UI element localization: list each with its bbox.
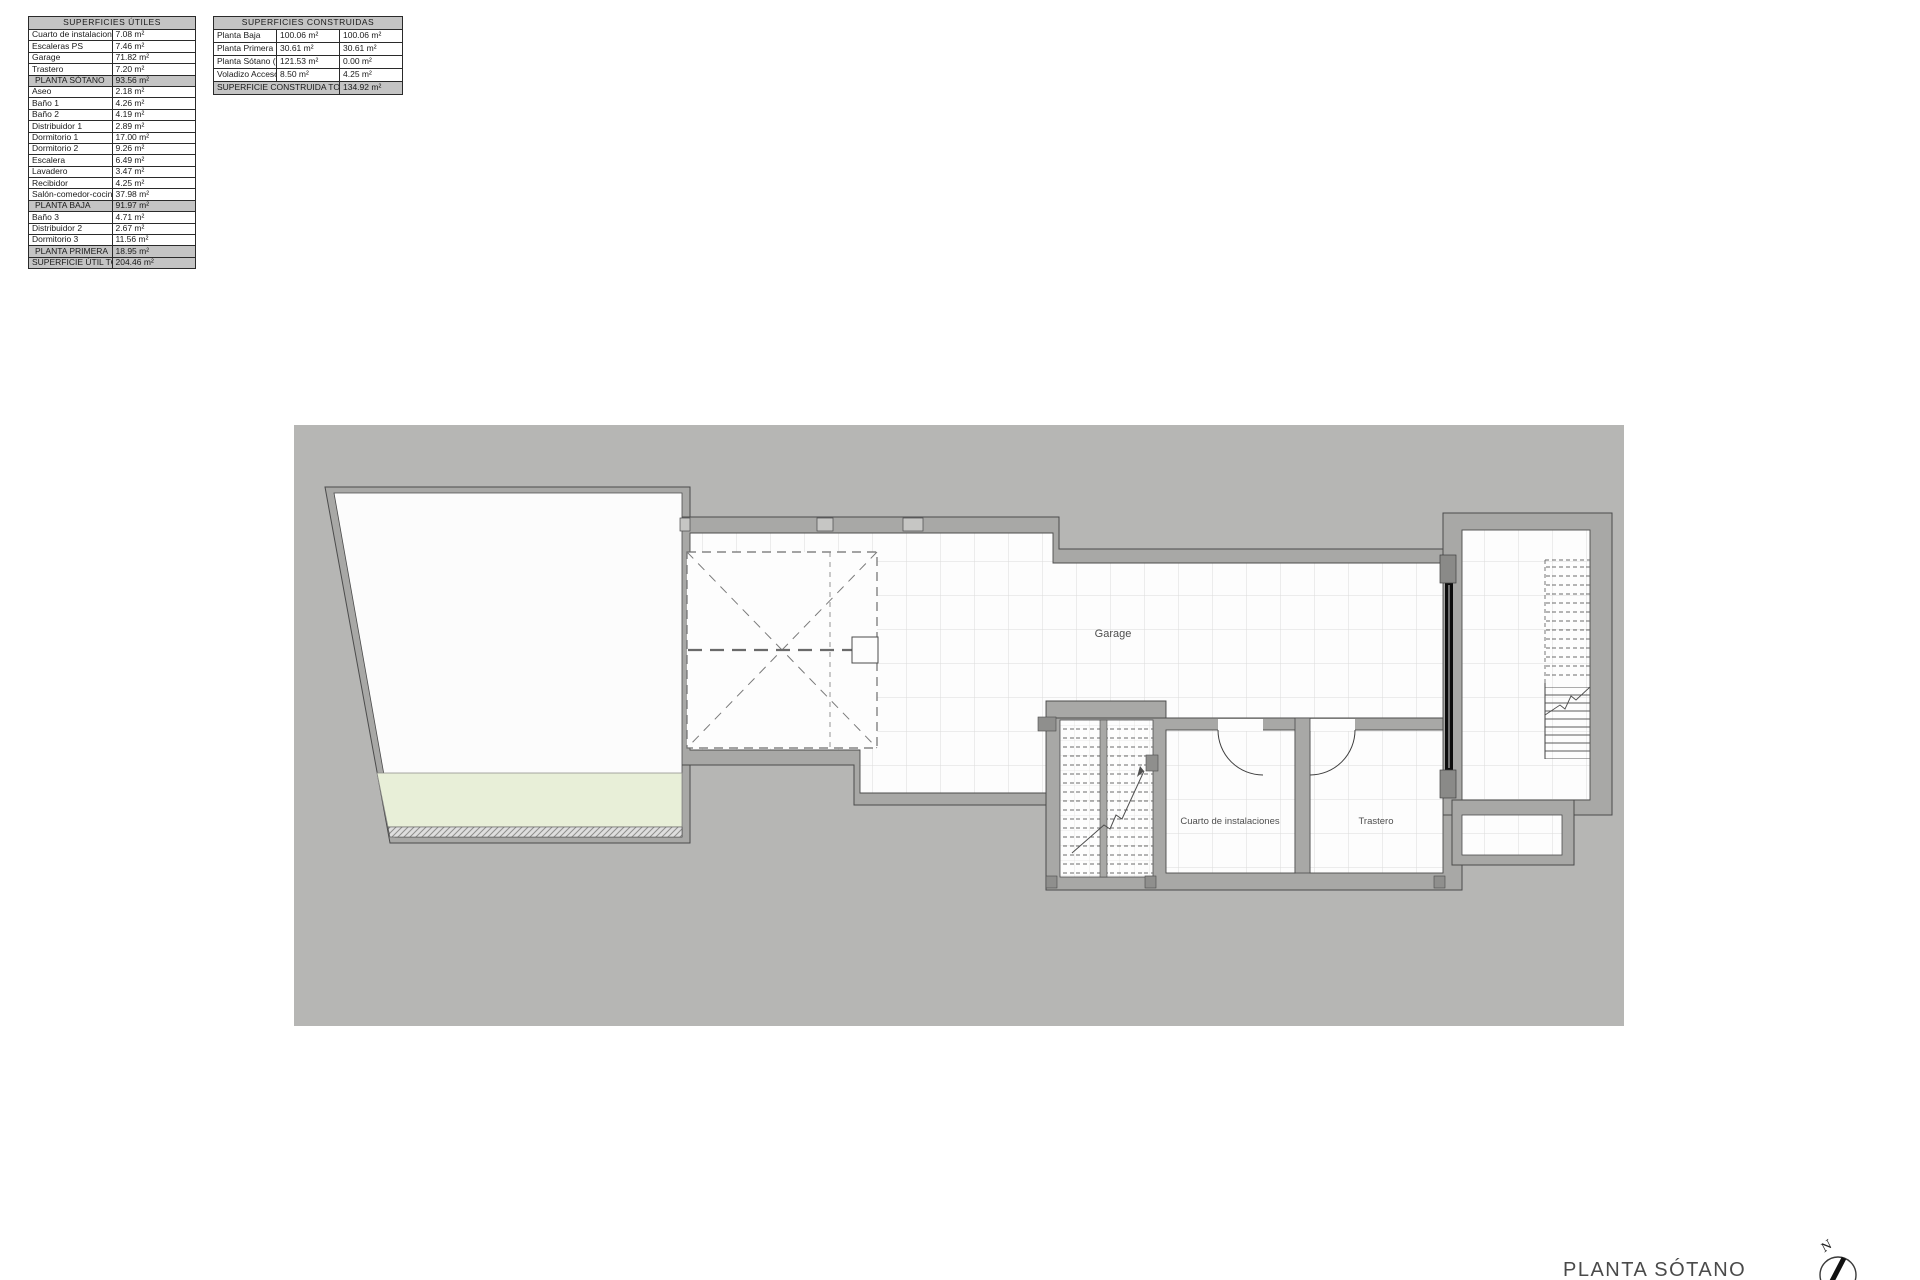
table-superficies-construidas: SUPERFICIES CONSTRUIDAS Planta Baja100.0… bbox=[213, 16, 403, 95]
floor-plan: Garage Cuarto de instalaciones Trastero bbox=[294, 425, 1624, 1026]
row-label: Dormitorio 3 bbox=[29, 235, 113, 246]
row-value: 4.25 m² bbox=[340, 69, 403, 82]
row-label: PLANTA BAJA bbox=[29, 200, 113, 211]
row-label: Escaleras PS bbox=[29, 41, 113, 52]
row-label: Distribuidor 1 bbox=[29, 121, 113, 132]
row-value: 17.00 m² bbox=[112, 132, 196, 143]
row-value: 121.53 m² bbox=[277, 56, 340, 69]
row-label: Baño 2 bbox=[29, 109, 113, 120]
row-value: 2.89 m² bbox=[112, 121, 196, 132]
row-value: 37.98 m² bbox=[112, 189, 196, 200]
table-header-row: SUPERFICIES CONSTRUIDAS bbox=[214, 17, 403, 30]
north-arrow-icon: N bbox=[1800, 1238, 1880, 1280]
car-lift-void bbox=[687, 552, 878, 748]
right-stairs bbox=[1545, 560, 1590, 759]
cuarto-label: Cuarto de instalaciones bbox=[1180, 816, 1280, 827]
row-value: 0.00 m² bbox=[340, 56, 403, 69]
row-label: Planta Sótano (0%) bbox=[214, 56, 277, 69]
table-title: SUPERFICIES ÚTILES bbox=[29, 17, 196, 30]
landing-floor bbox=[1462, 815, 1562, 855]
trastero-floor bbox=[1310, 730, 1443, 873]
terrace-green-strip bbox=[377, 773, 682, 827]
row-label: Salón-comedor-cocina bbox=[29, 189, 113, 200]
row-value: 134.92 m² bbox=[340, 82, 403, 95]
row-label: Garage bbox=[29, 52, 113, 63]
row-value: 7.20 m² bbox=[112, 64, 196, 75]
table-superficies-utiles: SUPERFICIES ÚTILES Cuarto de instalacion… bbox=[28, 16, 196, 269]
row-value: 30.61 m² bbox=[277, 43, 340, 56]
garage-label: Garage bbox=[1095, 628, 1132, 640]
row-label: Planta Primera bbox=[214, 43, 277, 56]
row-label: Baño 1 bbox=[29, 98, 113, 109]
row-label: Baño 3 bbox=[29, 212, 113, 223]
row-value: 30.61 m² bbox=[340, 43, 403, 56]
drawing-sheet: SUPERFICIES ÚTILES Cuarto de instalacion… bbox=[0, 0, 1920, 1280]
row-value: 100.06 m² bbox=[340, 30, 403, 43]
lift-platform-symbol bbox=[852, 637, 878, 663]
row-label: Planta Baja bbox=[214, 30, 277, 43]
row-value: 93.56 m² bbox=[112, 75, 196, 86]
row-value: 7.08 m² bbox=[112, 30, 196, 41]
table-row: Baño 34.71 m² bbox=[29, 212, 196, 223]
row-label: PLANTA PRIMERA bbox=[29, 246, 113, 257]
row-label: Trastero bbox=[29, 64, 113, 75]
table-row: SUPERFICIE CONSTRUIDA TOTAL134.92 m² bbox=[214, 82, 403, 95]
row-value: 8.50 m² bbox=[277, 69, 340, 82]
row-value: 4.71 m² bbox=[112, 212, 196, 223]
room-divider-wall bbox=[1295, 718, 1310, 873]
row-label: Dormitorio 2 bbox=[29, 143, 113, 154]
row-value: 4.25 m² bbox=[112, 178, 196, 189]
table-row: Lavadero3.47 m² bbox=[29, 166, 196, 177]
table-header-row: SUPERFICIES ÚTILES bbox=[29, 17, 196, 30]
row-label: Cuarto de instalaciones bbox=[29, 30, 113, 41]
table-row: PLANTA BAJA91.97 m² bbox=[29, 200, 196, 211]
table-row: PLANTA SÓTANO93.56 m² bbox=[29, 75, 196, 86]
table-row: PLANTA PRIMERA18.95 m² bbox=[29, 246, 196, 257]
table-title: SUPERFICIES CONSTRUIDAS bbox=[214, 17, 403, 30]
row-label: Lavadero bbox=[29, 166, 113, 177]
table-row: Voladizo Acceso(50%)8.50 m²4.25 m² bbox=[214, 69, 403, 82]
north-letter: N bbox=[1817, 1238, 1835, 1255]
row-value: 18.95 m² bbox=[112, 246, 196, 257]
table-row: Dormitorio 117.00 m² bbox=[29, 132, 196, 143]
row-value: 2.18 m² bbox=[112, 86, 196, 97]
row-value: 204.46 m² bbox=[112, 257, 196, 268]
row-value: 91.97 m² bbox=[112, 200, 196, 211]
row-value: 11.56 m² bbox=[112, 235, 196, 246]
row-label: PLANTA SÓTANO bbox=[29, 75, 113, 86]
table-row: Escaleras PS7.46 m² bbox=[29, 41, 196, 52]
row-label: SUPERFICIE ÚTIL TOTAL bbox=[29, 257, 113, 268]
cuarto-floor bbox=[1166, 730, 1295, 873]
table-row: Baño 14.26 m² bbox=[29, 98, 196, 109]
table-row: Aseo2.18 m² bbox=[29, 86, 196, 97]
row-value: 2.67 m² bbox=[112, 223, 196, 234]
row-value: 71.82 m² bbox=[112, 52, 196, 63]
row-value: 4.26 m² bbox=[112, 98, 196, 109]
table-row: Trastero7.20 m² bbox=[29, 64, 196, 75]
row-label: Escalera bbox=[29, 155, 113, 166]
table-row: Salón-comedor-cocina37.98 m² bbox=[29, 189, 196, 200]
table-row: Cuarto de instalaciones7.08 m² bbox=[29, 30, 196, 41]
table-row: Garage71.82 m² bbox=[29, 52, 196, 63]
trastero-label: Trastero bbox=[1358, 816, 1393, 827]
terrace-hatch-strip bbox=[388, 827, 682, 837]
row-value: 6.49 m² bbox=[112, 155, 196, 166]
table-row: Distribuidor 22.67 m² bbox=[29, 223, 196, 234]
table-row: Planta Primera30.61 m²30.61 m² bbox=[214, 43, 403, 56]
table-row: Recibidor4.25 m² bbox=[29, 178, 196, 189]
table-row: Dormitorio 311.56 m² bbox=[29, 235, 196, 246]
row-value: 4.19 m² bbox=[112, 109, 196, 120]
floor-plan-drawing: Garage Cuarto de instalaciones Trastero bbox=[294, 425, 1624, 1026]
table-row: Dormitorio 29.26 m² bbox=[29, 143, 196, 154]
table-row: Distribuidor 12.89 m² bbox=[29, 121, 196, 132]
row-label: SUPERFICIE CONSTRUIDA TOTAL bbox=[214, 82, 340, 95]
table-row: Planta Sótano (0%)121.53 m²0.00 m² bbox=[214, 56, 403, 69]
row-value: 9.26 m² bbox=[112, 143, 196, 154]
table-row: SUPERFICIE ÚTIL TOTAL204.46 m² bbox=[29, 257, 196, 268]
row-label: Aseo bbox=[29, 86, 113, 97]
row-label: Voladizo Acceso(50%) bbox=[214, 69, 277, 82]
row-value: 3.47 m² bbox=[112, 166, 196, 177]
table-row: Escalera6.49 m² bbox=[29, 155, 196, 166]
row-value: 7.46 m² bbox=[112, 41, 196, 52]
row-value: 100.06 m² bbox=[277, 30, 340, 43]
row-label: Dormitorio 1 bbox=[29, 132, 113, 143]
table-row: Baño 24.19 m² bbox=[29, 109, 196, 120]
row-label: Distribuidor 2 bbox=[29, 223, 113, 234]
table-row: Planta Baja100.06 m²100.06 m² bbox=[214, 30, 403, 43]
plan-caption: PLANTA SÓTANO bbox=[1563, 1259, 1746, 1280]
row-label: Recibidor bbox=[29, 178, 113, 189]
